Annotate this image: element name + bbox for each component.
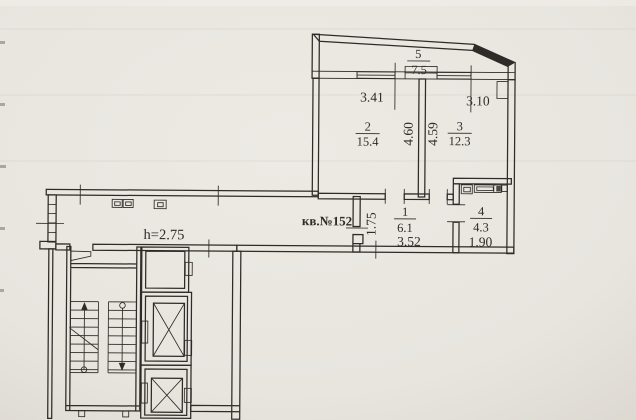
dim-room2-width: 3.41 [360,90,384,105]
paper-texture [0,0,636,420]
dim-room3-width: 3.10 [466,93,490,108]
room-5-number: 5 [415,47,421,61]
floor-plan-drawing: 5 7.5 2 15.4 3 12.3 1 6.1 4 4.3 3.41 3.1… [0,0,636,420]
room-3-area: 12.3 [449,134,471,148]
dim-room2-depth: 4.60 [401,122,416,146]
room-3-number: 3 [457,119,463,133]
room-1-area: 6.1 [397,221,413,235]
floor-plan-photo: 5 7.5 2 15.4 3 12.3 1 6.1 4 4.3 3.41 3.1… [0,0,636,420]
room-4-number: 4 [478,204,485,218]
dim-bath-width: 1.90 [469,234,493,249]
apartment-number-label: кв.№152 [302,213,352,228]
room-1-number: 1 [402,205,408,219]
room-4-area: 4.3 [473,220,489,234]
room-2-area: 15.4 [357,135,380,149]
room-5-area: 7.5 [411,63,427,77]
dim-room3-depth: 4.59 [425,122,440,146]
dim-hall-width: 3.52 [397,234,421,249]
dim-hall-depth: 1.75 [363,212,378,236]
room-2-number: 2 [365,120,371,134]
ceiling-height-label: h=2.75 [143,227,184,243]
